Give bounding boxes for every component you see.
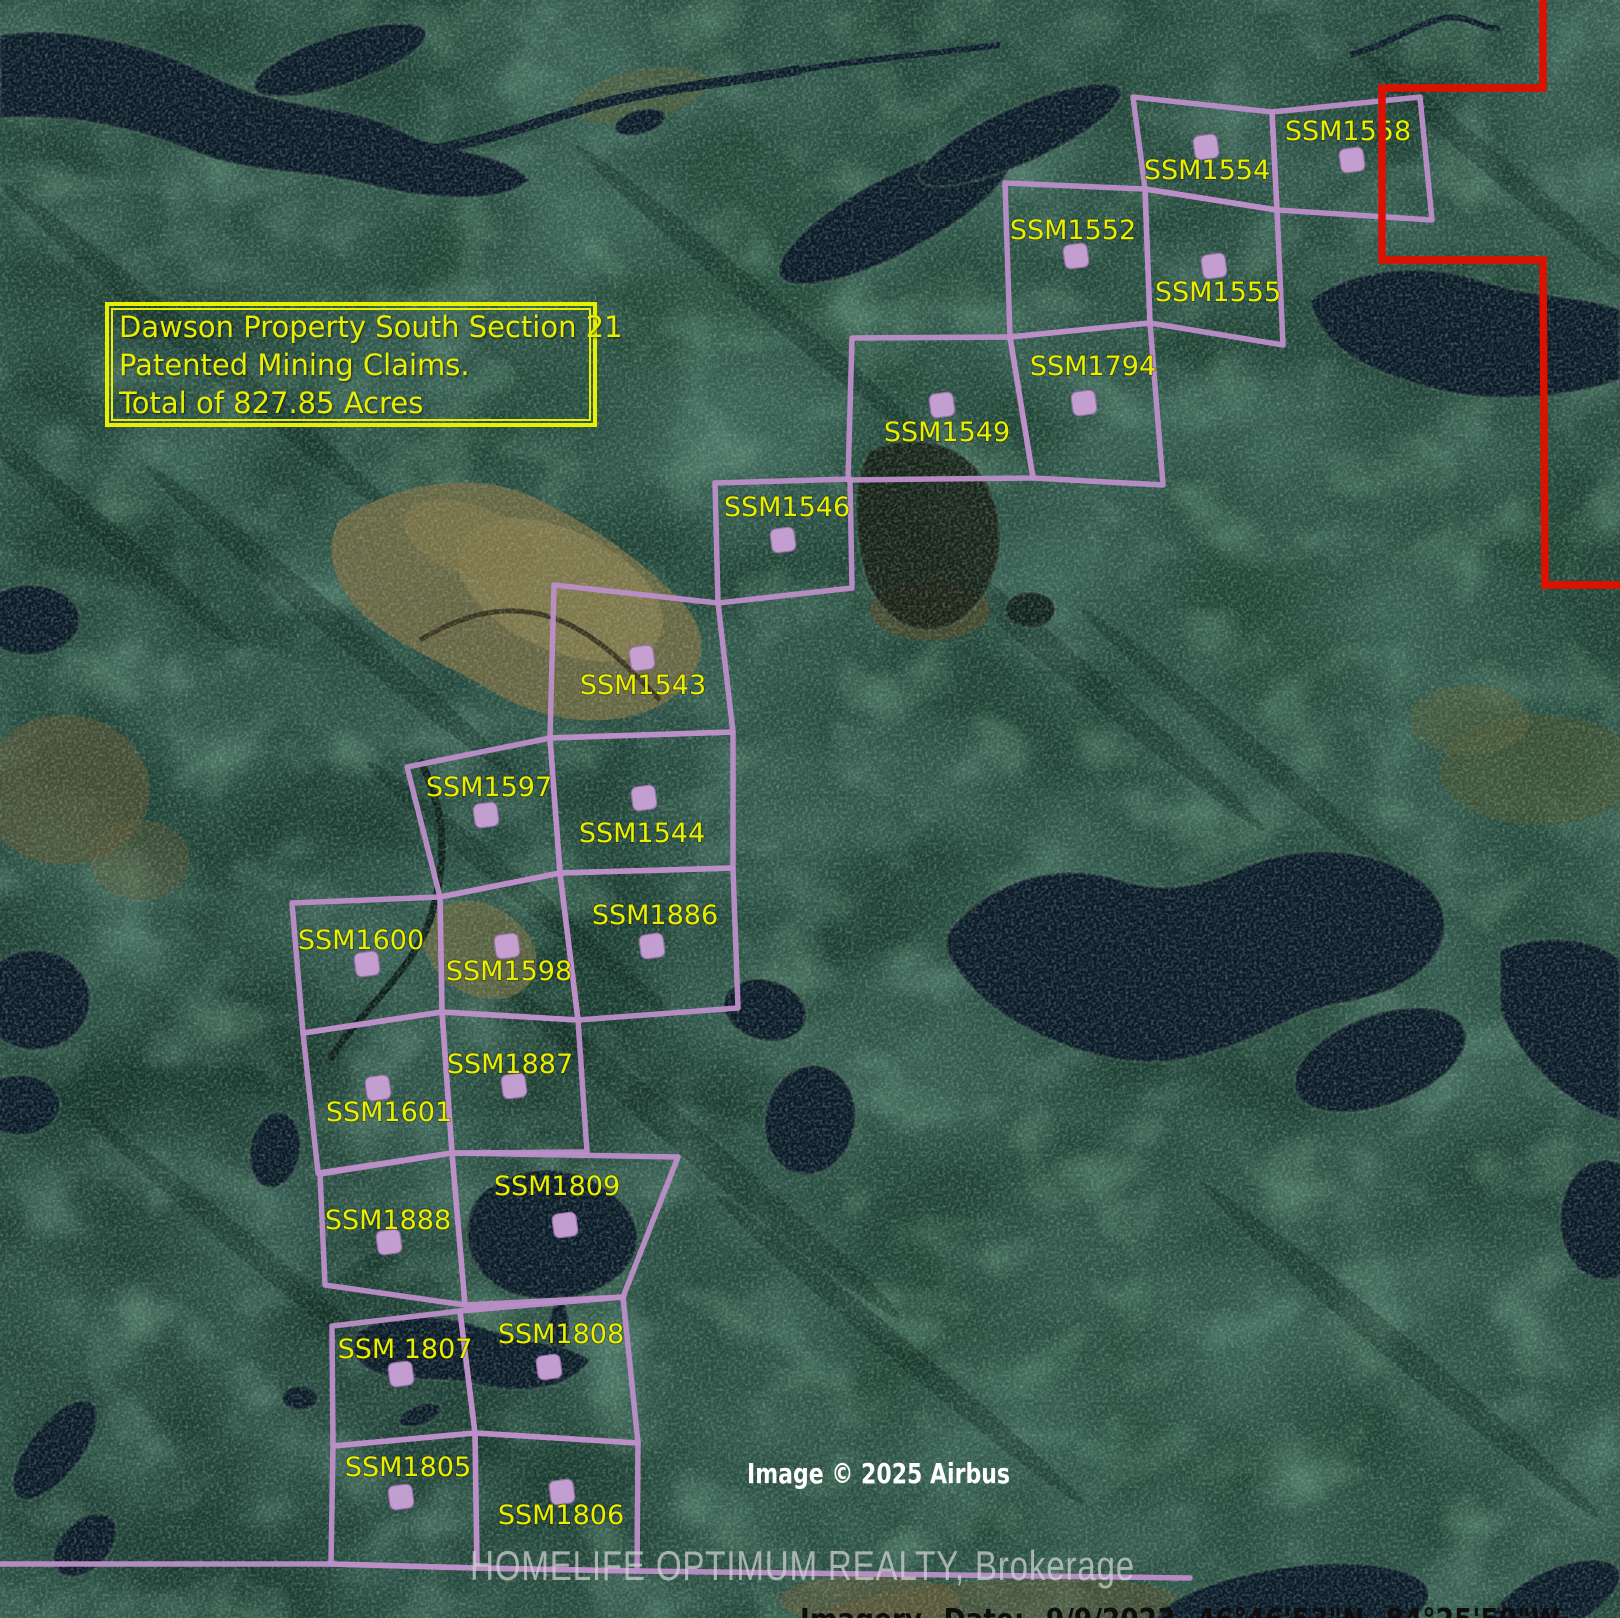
claim-label-ssm1888: SSM1888 <box>325 1205 451 1236</box>
claim-label-ssm1554: SSM1554 <box>1144 155 1270 186</box>
airbus-attribution: Image © 2025 Airbus <box>747 1457 1010 1490</box>
map-canvas: SSM1554SSM1558SSM1552SSM1555SSM1794SSM15… <box>0 0 1620 1618</box>
claim-label-ssm1805: SSM1805 <box>345 1452 471 1483</box>
claim-marker-icon-ssm1552 <box>1062 242 1089 269</box>
claim-marker-icon-ssm1555 <box>1200 252 1227 279</box>
claim-marker-icon-ssm1809 <box>551 1211 578 1238</box>
claim-label-ssm1598: SSM1598 <box>446 956 572 987</box>
claim-marker-icon-ssm1544 <box>630 784 657 811</box>
claim-label-ssm1555: SSM1555 <box>1155 277 1281 308</box>
bottom-imagery-text: Imagery Date: 9/9/2023 46°46'53"N 84°25'… <box>800 1603 1560 1618</box>
claim-label-ssm1546: SSM1546 <box>724 492 850 523</box>
claim-label-ssm1544: SSM1544 <box>579 818 705 849</box>
claim-label-ssm1808: SSM1808 <box>498 1319 624 1350</box>
claim-label-ssm1601: SSM1601 <box>326 1097 452 1128</box>
info-box-line-1: Dawson Property South Section 21 <box>119 308 583 346</box>
claim-label-ssm1794: SSM1794 <box>1030 351 1156 382</box>
claim-label-ssm1806: SSM1806 <box>498 1500 624 1531</box>
info-box-line-3: Total of 827.85 Acres <box>119 384 583 422</box>
claim-marker-icon-ssm1597 <box>472 801 499 828</box>
info-box-line-2: Patented Mining Claims. <box>119 346 583 384</box>
claim-marker-icon-ssm1794 <box>1070 389 1097 416</box>
claim-label-ssm1543: SSM1543 <box>580 670 706 701</box>
claim-marker-icon-ssm1543 <box>628 644 655 671</box>
claim-label-ssm1886: SSM1886 <box>592 900 718 931</box>
claim-marker-icon-ssm1808 <box>535 1353 562 1380</box>
claim-marker-icon-ssm1546 <box>769 526 796 553</box>
claim-marker-icon-ssm1805 <box>387 1483 414 1510</box>
claim-label-ssm1549: SSM1549 <box>884 417 1010 448</box>
claim-marker-icon-ssm1886 <box>638 932 665 959</box>
claim-label-ssm1887: SSM1887 <box>447 1049 573 1080</box>
claim-label-ssm1600: SSM1600 <box>298 925 424 956</box>
brokerage-watermark: HOMELIFE OPTIMUM REALTY, Brokerage <box>470 1542 1135 1589</box>
claim-label-ssm1597: SSM1597 <box>426 772 552 803</box>
claim-label-ssm1552: SSM1552 <box>1010 215 1136 246</box>
canopy-texture <box>0 0 1620 1618</box>
claim-marker-icon-ssm1549 <box>928 391 955 418</box>
claim-label-ssm1558: SSM1558 <box>1285 116 1411 147</box>
satellite-map: SSM1554SSM1558SSM1552SSM1555SSM1794SSM15… <box>0 0 1620 1618</box>
claim-label-ssm1809: SSM1809 <box>494 1171 620 1202</box>
claim-marker-icon-ssm1558 <box>1338 146 1365 173</box>
claim-label-ssm1807: SSM 1807 <box>338 1334 473 1365</box>
property-info-box: Dawson Property South Section 21 Patente… <box>105 302 597 427</box>
